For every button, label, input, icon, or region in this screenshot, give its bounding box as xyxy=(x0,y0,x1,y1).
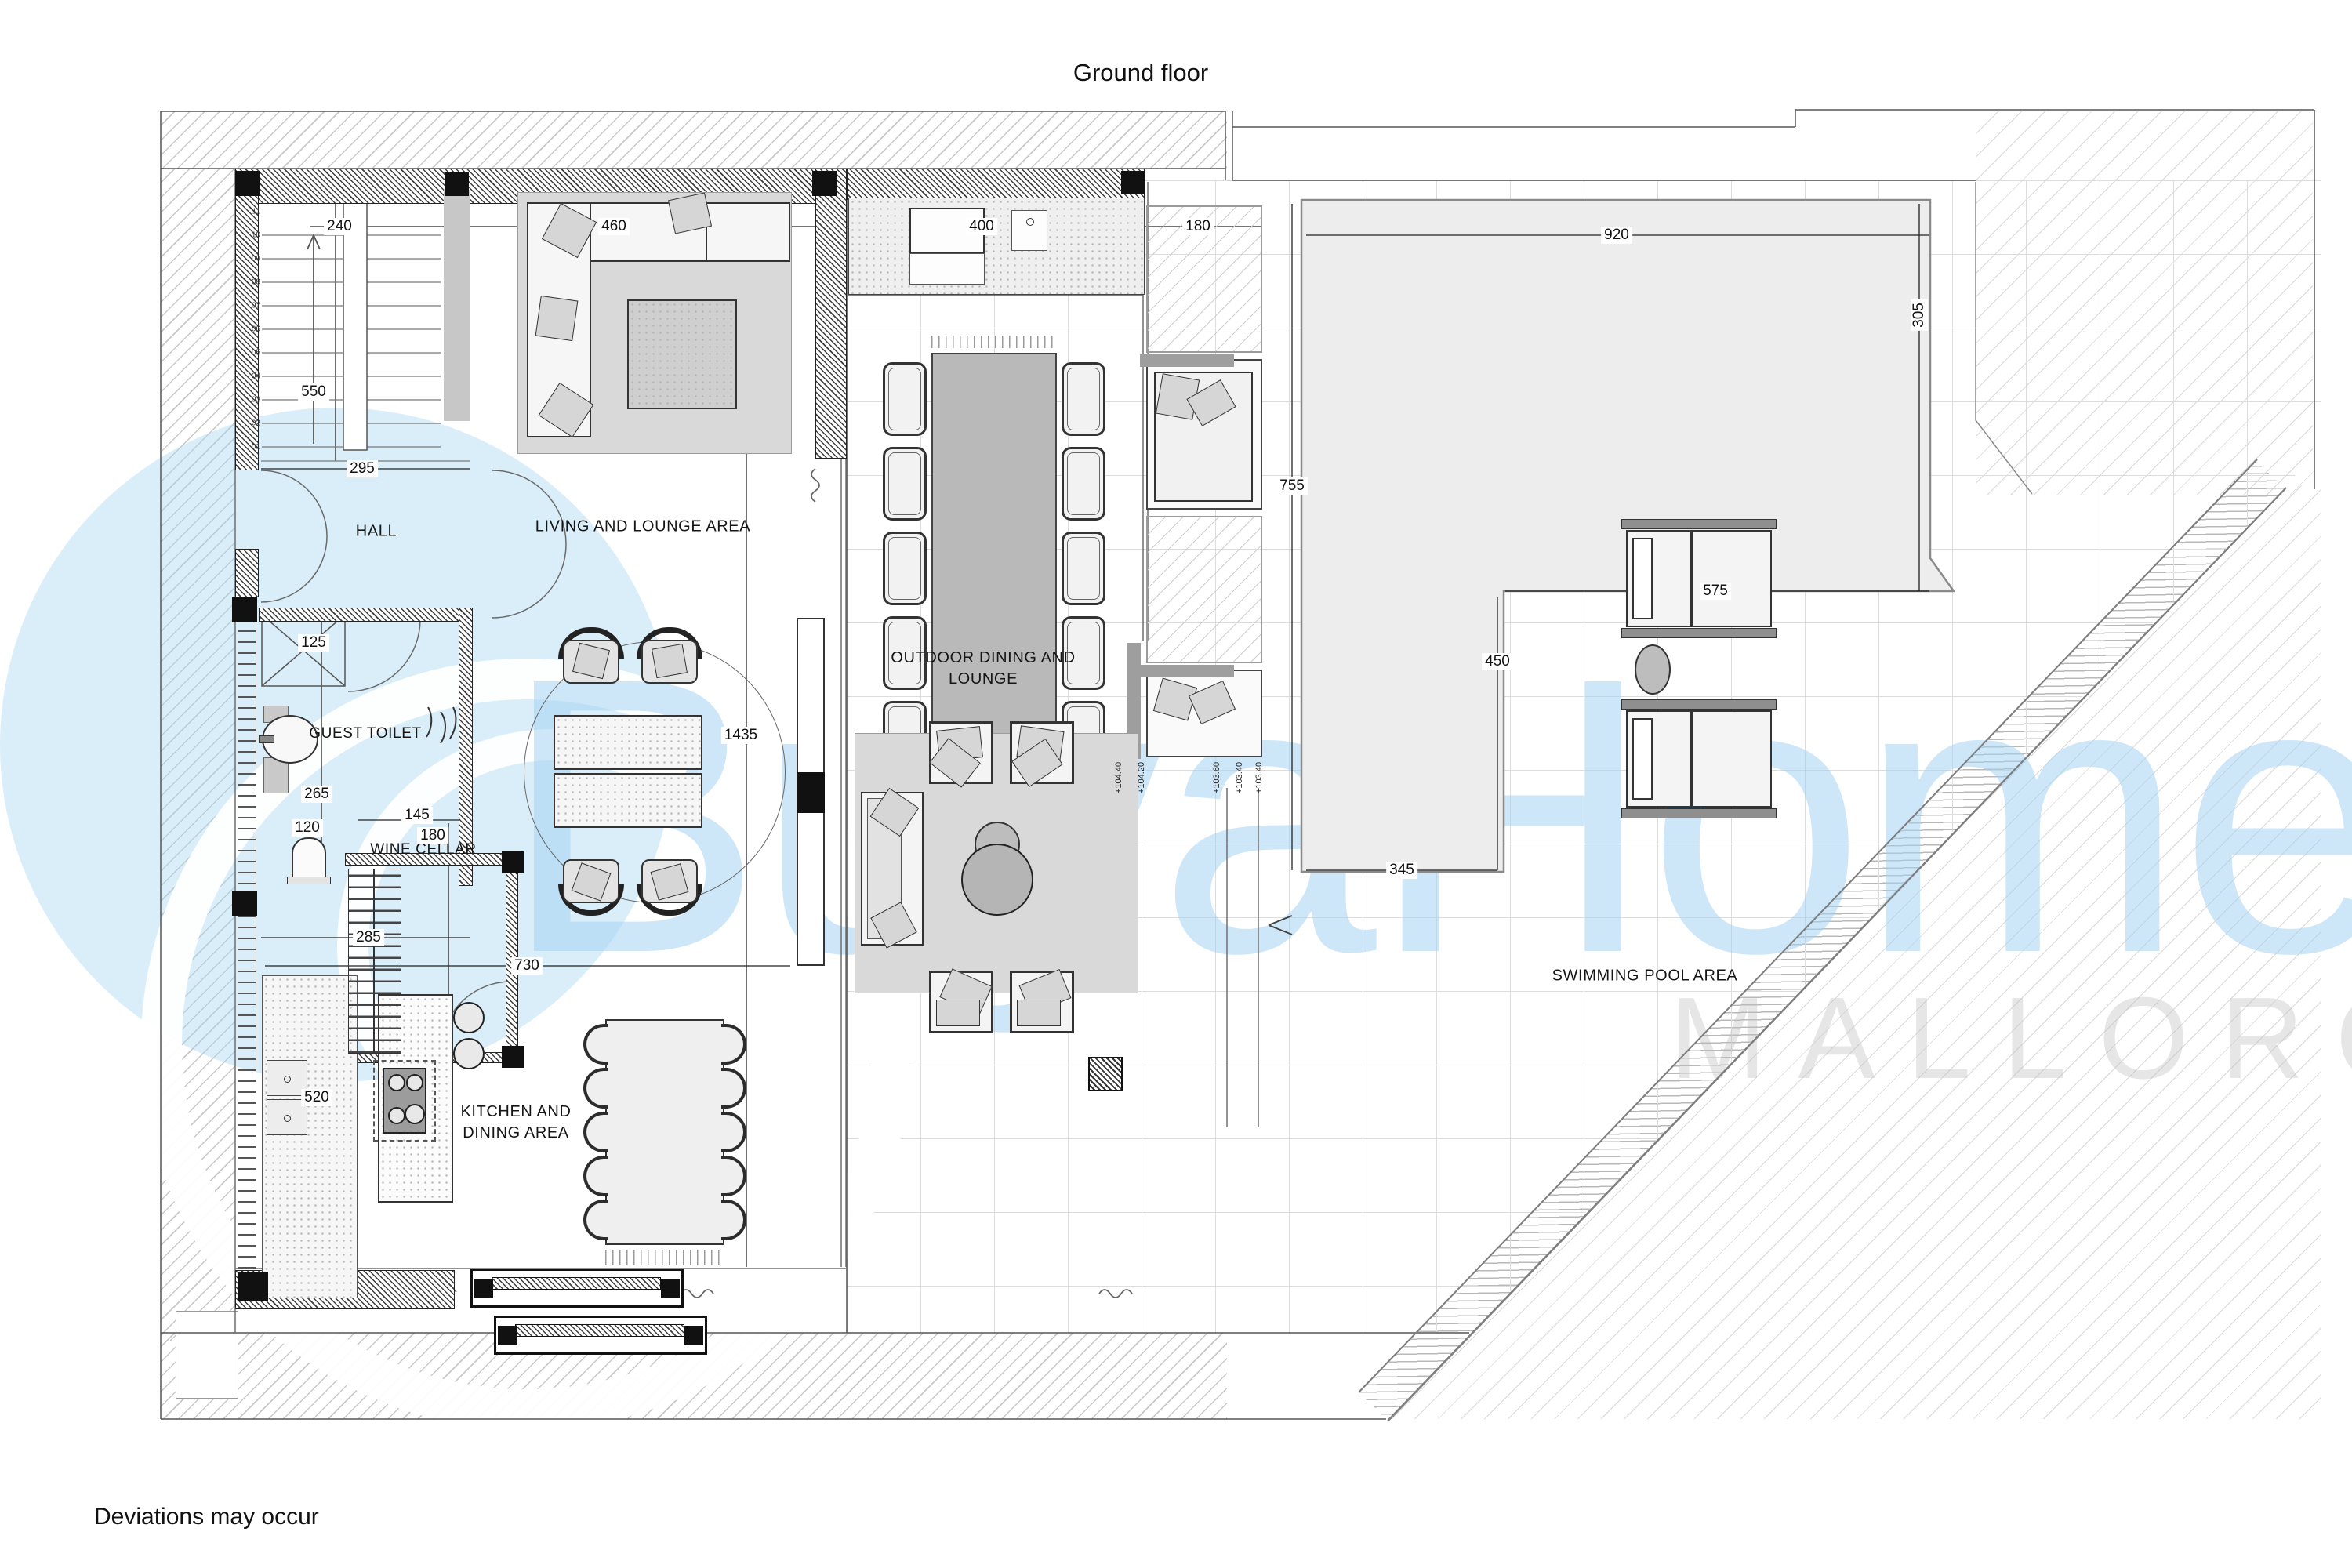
firepit xyxy=(1088,1057,1123,1091)
column xyxy=(498,1326,517,1345)
dining-table-top xyxy=(554,715,702,770)
wall-left-entry xyxy=(235,549,259,597)
lounger-divider xyxy=(1690,532,1693,626)
dim-pool-right: 305 xyxy=(1911,299,1928,331)
dim-cellar-width: 145 xyxy=(401,807,433,824)
grass-strip xyxy=(931,336,1057,348)
chair-inner xyxy=(888,452,921,515)
wine-rack xyxy=(348,869,401,1054)
dim-stair-width: 240 xyxy=(324,218,355,235)
chair-inner xyxy=(1067,452,1100,515)
chair xyxy=(1062,362,1105,436)
armchair xyxy=(1010,721,1074,784)
burner xyxy=(406,1074,423,1091)
dim-terrace-width: 400 xyxy=(966,218,997,235)
chair xyxy=(637,640,702,684)
column xyxy=(661,1279,680,1298)
armchair xyxy=(1010,971,1074,1033)
burner xyxy=(388,1107,405,1124)
dim-stair-depth: 550 xyxy=(298,383,329,401)
dim-living-length: 1435 xyxy=(721,727,760,744)
stair-step-label: 11 xyxy=(252,208,260,216)
elevation-label: +104.20 xyxy=(1137,762,1146,793)
kitchen-table xyxy=(605,1019,724,1245)
dining-table-top xyxy=(554,773,702,828)
dim-pool-bottom: 345 xyxy=(1386,862,1417,879)
room-label-outdoor: OUTDOOR DINING AND LOUNGE xyxy=(891,648,1075,690)
column xyxy=(474,1279,493,1298)
dim-pool-inner: 575 xyxy=(1700,583,1731,600)
kitchen-counter xyxy=(262,975,358,1298)
elevation-label: +103.40 xyxy=(1254,762,1264,793)
column xyxy=(502,1046,524,1068)
dim-toilet-depth: 265 xyxy=(301,786,332,803)
planter-bed xyxy=(1146,516,1262,663)
dim-hall-width: 295 xyxy=(347,460,378,477)
grass-strip xyxy=(605,1250,724,1265)
outdoor-kitchen-counter xyxy=(848,198,1145,295)
burner xyxy=(388,1074,405,1091)
sofa-chaise-right xyxy=(706,202,790,262)
room-label-guest-toilet: GUEST TOILET xyxy=(309,724,421,744)
pillow xyxy=(936,1000,980,1026)
chair xyxy=(883,447,927,521)
dim-toilet-width: 120 xyxy=(292,819,323,837)
room-label-living: LIVING AND LOUNGE AREA xyxy=(535,517,750,538)
pillow xyxy=(1017,1000,1061,1026)
armchair xyxy=(929,721,993,784)
room-label-kitchen: KITCHEN AND DINING AREA xyxy=(460,1102,571,1144)
lounger-rail xyxy=(1621,808,1777,818)
chair-inner xyxy=(1067,537,1100,600)
stove xyxy=(383,1068,426,1134)
stair-step-label: 06 xyxy=(252,325,260,334)
dim-planter-width: 180 xyxy=(1182,218,1214,235)
wall-stair-partition xyxy=(444,190,470,421)
wall-terrace-top xyxy=(847,169,1145,200)
dim-kitchen-depth: 520 xyxy=(301,1089,332,1106)
lounger-divider xyxy=(1690,712,1693,806)
pillow xyxy=(652,644,688,678)
column xyxy=(1121,171,1145,194)
column xyxy=(238,1272,268,1301)
disclaimer-note: Deviations may occur xyxy=(94,1504,319,1530)
wc-cistern xyxy=(287,877,331,884)
dim-entry-closet: 125 xyxy=(298,634,329,652)
dim-cellar-depth: 180 xyxy=(417,827,448,844)
sliding-door-leaf xyxy=(515,1324,684,1337)
tap xyxy=(259,735,274,743)
dim-bottom-width: 285 xyxy=(353,929,384,946)
drain xyxy=(1026,218,1034,226)
wine-rack-divider xyxy=(373,869,375,1054)
lounger-rail xyxy=(1621,699,1777,710)
alcove-wall xyxy=(1140,665,1234,677)
room-label-pool: SWIMMING POOL AREA xyxy=(1552,966,1738,987)
page-title: Ground floor xyxy=(1073,59,1208,87)
stair-step-label: 04 xyxy=(252,372,260,381)
stair-step-label: 05 xyxy=(252,349,260,358)
stair-step-label: 09 xyxy=(252,255,260,263)
window-strip-west xyxy=(238,597,256,1301)
daybed-alcove xyxy=(1146,359,1262,510)
chair xyxy=(558,859,624,903)
column xyxy=(812,171,837,196)
column xyxy=(502,851,524,873)
fireplace xyxy=(797,772,825,813)
burner xyxy=(405,1104,425,1124)
elevation-label: +103.60 xyxy=(1212,762,1221,793)
alcove-wall xyxy=(1140,354,1234,367)
chair-inner xyxy=(888,368,921,430)
lounger-rail xyxy=(1621,628,1777,638)
column xyxy=(232,891,257,916)
stair-step-label: 01 xyxy=(252,443,260,452)
chair xyxy=(637,859,702,903)
dim-pool-left: 755 xyxy=(1276,477,1308,495)
outdoor-sink xyxy=(1011,210,1047,251)
appliance-knob xyxy=(284,1076,291,1083)
lounger-headrest xyxy=(1632,538,1653,619)
living-carpet xyxy=(627,299,737,409)
chair xyxy=(1062,532,1105,605)
sliding-door-leaf xyxy=(492,1277,661,1290)
chair-inner xyxy=(1067,368,1100,430)
stair-step-label: 07 xyxy=(252,302,260,310)
sliding-door xyxy=(494,1316,707,1355)
chair-inner xyxy=(888,537,921,600)
appliance-knob xyxy=(284,1115,291,1122)
stair-step-label: 08 xyxy=(252,278,260,287)
sliding-door xyxy=(470,1269,684,1308)
column xyxy=(235,171,260,196)
pillow xyxy=(535,296,579,341)
dim-kitchen-width: 730 xyxy=(511,957,543,975)
side-table xyxy=(1635,644,1671,695)
elevation-label: +104.40 xyxy=(1114,762,1123,793)
column xyxy=(232,597,257,622)
dim-pool-inner-right: 450 xyxy=(1482,653,1513,670)
chair xyxy=(558,640,624,684)
chair xyxy=(1062,447,1105,521)
room-label-hall: HALL xyxy=(356,521,397,543)
elevation-label: +103.40 xyxy=(1235,762,1244,793)
lounger-rail xyxy=(1621,519,1777,529)
armchair xyxy=(929,971,993,1033)
dim-pool-top: 920 xyxy=(1601,227,1632,244)
chair xyxy=(883,532,927,605)
daybed-alcove xyxy=(1146,670,1262,757)
sun-lounger xyxy=(1621,699,1777,818)
column xyxy=(684,1326,703,1345)
kitchen-sink xyxy=(453,1038,485,1069)
kitchen-sink xyxy=(453,1002,485,1033)
outdoor-appliance xyxy=(909,253,985,285)
coffee-table xyxy=(961,844,1033,916)
sun-lounger xyxy=(1621,519,1777,638)
chair xyxy=(883,362,927,436)
wall-living-terrace xyxy=(815,169,847,459)
stair-step-label: 10 xyxy=(252,231,260,240)
floor-plan: Ground floor Deviations may occur BuyaHo… xyxy=(0,0,2352,1568)
stair-step-label: 02 xyxy=(252,419,260,428)
lounger-headrest xyxy=(1632,718,1653,800)
column xyxy=(445,172,469,196)
outdoor-sofa xyxy=(861,792,924,946)
wall-hall-toilet xyxy=(259,608,472,622)
stair-step-label: 03 xyxy=(252,396,260,405)
dim-sofa-width: 460 xyxy=(598,218,630,235)
